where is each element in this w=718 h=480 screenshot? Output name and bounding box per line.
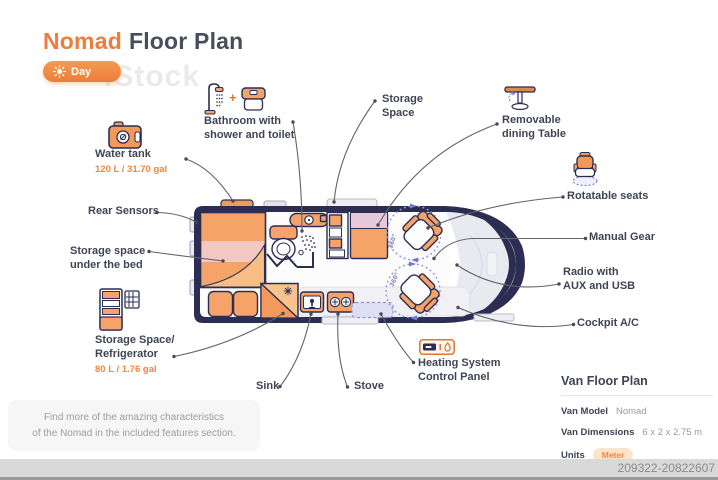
shower-icon — [204, 82, 226, 115]
sink-unit — [301, 292, 324, 312]
note-line-1: Find more of the amazing characteristics — [8, 410, 260, 426]
note-box: Find more of the amazing characteristics… — [8, 400, 260, 451]
callout-manual-gear: Manual Gear — [589, 231, 655, 245]
asset-id: 209322-20822607 — [618, 461, 718, 475]
callout-water-tank: Water tank 120 L / 31.70 gal — [95, 148, 167, 176]
callout-refrigerator: Storage Space/ Refrigerator 80 L / 1.76 … — [95, 334, 174, 375]
stove-unit — [328, 292, 354, 312]
callout-rear-sensors: Rear Sensors — [88, 205, 159, 219]
van-dimensions-row: Van Dimensions 6 x 2 x 2.75 m — [561, 427, 713, 438]
callout-sink: Sink — [256, 380, 279, 394]
refrigerator-cabinet — [261, 284, 298, 319]
day-mode-label: Day — [71, 66, 91, 78]
van-dimensions-value: 6 x 2 x 2.75 m — [642, 427, 702, 438]
dining-table-icon — [504, 84, 536, 112]
callout-heating: Heating System Control Panel — [418, 357, 501, 385]
day-mode-toggle[interactable]: Day — [43, 61, 121, 82]
van-model-row: Van Model Nomad — [561, 406, 713, 417]
bed-cushion-2 — [234, 292, 258, 317]
callout-cockpit-ac: Cockpit A/C — [577, 317, 639, 331]
note-line-2: of the Nomad in the included features se… — [8, 426, 260, 442]
bed-cushion-1 — [209, 292, 233, 317]
watermark-id-bar: 209322-20822607 — [0, 459, 718, 480]
callout-stove: Stove — [354, 380, 384, 394]
callout-radio: Radio with AUX and USB — [563, 266, 635, 294]
refrigerator-icon — [98, 286, 142, 332]
plus-glyph: + — [229, 90, 237, 105]
callout-rotatable-seats: Rotatable seats — [567, 190, 648, 204]
sun-icon — [53, 65, 66, 78]
van-dimensions-label: Van Dimensions — [561, 427, 634, 438]
van-model-value: Nomad — [616, 406, 647, 417]
wardrobe-cabinet — [327, 213, 348, 259]
callout-storage-space: Storage Space — [382, 93, 423, 121]
van-model-label: Van Model — [561, 406, 608, 417]
heating-panel-icon — [419, 339, 455, 355]
bed — [201, 213, 266, 288]
callout-storage-under-bed: Storage space under the bed — [70, 245, 145, 273]
heating-panel — [352, 303, 393, 318]
floor-plan-page: iStock NomadFloor Plan Day — [0, 0, 718, 480]
rotatable-seat-icon — [571, 152, 599, 187]
callout-dining-table: Removable dining Table — [502, 114, 566, 142]
van-info-title: Van Floor Plan — [561, 374, 713, 396]
toilet — [270, 226, 297, 260]
callout-bathroom: Bathroom with shower and toilet — [204, 115, 294, 143]
toilet-icon — [240, 86, 267, 113]
van-info-panel: Van Floor Plan Van Model Nomad Van Dimen… — [561, 374, 713, 462]
